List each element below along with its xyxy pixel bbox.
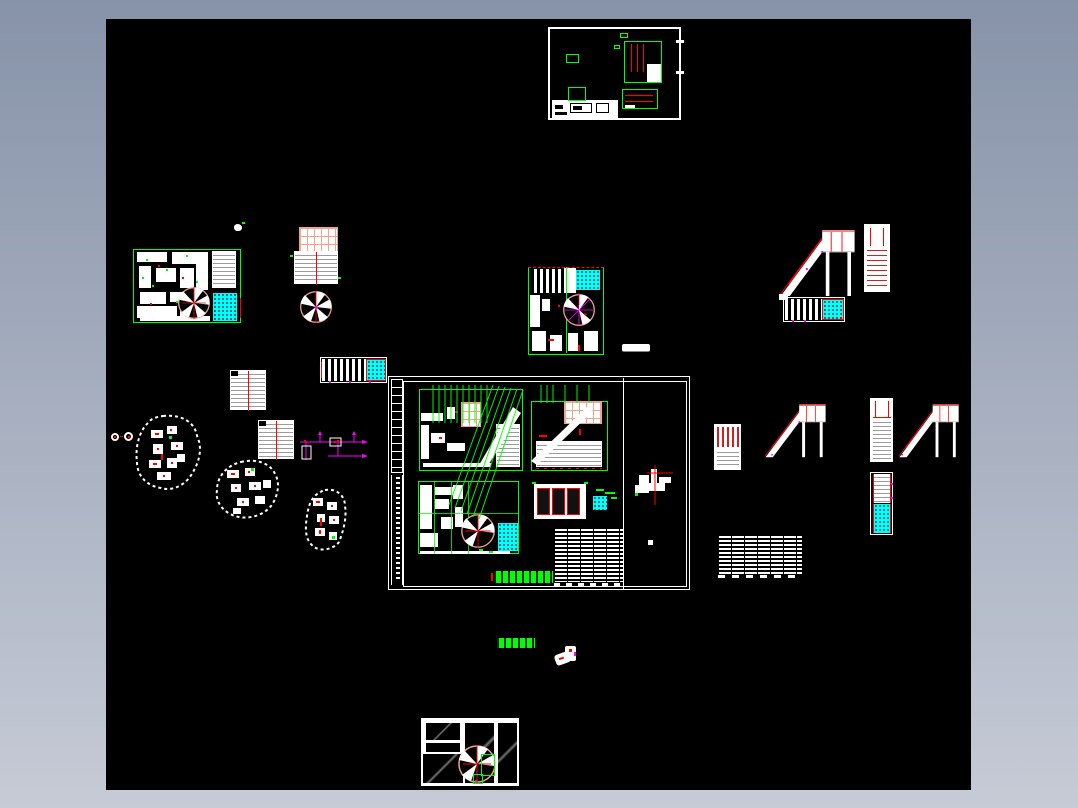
stair-run-plan bbox=[212, 251, 236, 288]
title-block-field bbox=[596, 103, 609, 113]
marker bbox=[840, 317, 842, 319]
hatched-shaft bbox=[576, 270, 600, 290]
revision-strip bbox=[391, 379, 403, 473]
panel bbox=[498, 723, 517, 783]
marker bbox=[584, 482, 588, 484]
marker bbox=[114, 436, 116, 438]
spiral-stair-plan bbox=[177, 286, 211, 320]
marker bbox=[891, 483, 893, 485]
marker bbox=[128, 436, 130, 438]
panel bbox=[426, 743, 460, 752]
tread-plan-hatched bbox=[320, 357, 387, 383]
wall-segment bbox=[532, 331, 546, 351]
hatched-shaft bbox=[213, 293, 237, 321]
marker bbox=[579, 429, 581, 435]
rungs bbox=[867, 246, 887, 289]
three-panel-elevation bbox=[534, 484, 586, 519]
highlighted-notes bbox=[494, 571, 553, 583]
notch bbox=[231, 371, 238, 376]
marker bbox=[146, 259, 148, 261]
title-block-mark bbox=[573, 106, 582, 110]
marker bbox=[605, 492, 615, 494]
marker bbox=[120, 436, 123, 437]
ladder-plan-hatched bbox=[870, 472, 893, 535]
wall-segment bbox=[584, 331, 598, 351]
site-blob-b bbox=[213, 458, 283, 520]
marker bbox=[539, 435, 547, 437]
marker bbox=[891, 497, 893, 499]
salmon-grid bbox=[564, 401, 602, 424]
tread-bars bbox=[785, 299, 822, 320]
table-footer-dashes bbox=[718, 575, 802, 578]
sheet-edge-tick bbox=[676, 40, 684, 43]
sheet-divider bbox=[623, 378, 624, 590]
tread-bars bbox=[322, 359, 366, 381]
detail-outline bbox=[566, 54, 579, 63]
wall-segment bbox=[196, 252, 208, 290]
marker bbox=[574, 652, 576, 656]
ladder-elevation bbox=[870, 398, 893, 462]
detail-outline bbox=[614, 45, 620, 49]
rail bbox=[870, 228, 871, 246]
top-detail-sheet bbox=[548, 27, 681, 120]
marker bbox=[479, 549, 483, 551]
marker bbox=[369, 381, 371, 383]
drawing-canvas[interactable] bbox=[106, 19, 971, 790]
node-marker bbox=[234, 224, 242, 231]
rail bbox=[875, 401, 876, 417]
marker bbox=[152, 285, 154, 287]
rail bbox=[888, 401, 889, 417]
wall-segment bbox=[431, 433, 445, 443]
marker bbox=[349, 381, 351, 383]
marker bbox=[196, 281, 198, 283]
panel bbox=[567, 488, 580, 515]
notch bbox=[259, 421, 266, 426]
ladder-section bbox=[230, 370, 266, 410]
detail-section bbox=[622, 89, 658, 109]
marker bbox=[578, 345, 580, 351]
title-block-mark bbox=[555, 105, 563, 109]
center-plan-cluster bbox=[528, 265, 606, 357]
wall-segment bbox=[423, 463, 491, 467]
wall-segment bbox=[140, 292, 166, 304]
parts-table bbox=[718, 536, 802, 574]
wall-segment bbox=[421, 425, 429, 459]
detail-structure bbox=[624, 41, 662, 83]
panel bbox=[537, 488, 550, 515]
schedule-table bbox=[554, 529, 623, 582]
sheet-edge-tick bbox=[676, 71, 684, 74]
marker bbox=[186, 255, 188, 257]
stair-run-plan bbox=[294, 251, 338, 284]
marker bbox=[569, 649, 572, 652]
vertical-text bbox=[396, 477, 400, 581]
red-centerline bbox=[248, 371, 249, 411]
detail-outline bbox=[568, 87, 586, 101]
wall-segment bbox=[420, 485, 432, 529]
stair-run bbox=[536, 441, 602, 467]
site-nodes bbox=[111, 431, 131, 445]
small-block bbox=[565, 646, 576, 661]
wall-segment bbox=[137, 252, 167, 262]
table-footer-dashes bbox=[554, 583, 623, 586]
wall-segment bbox=[550, 335, 562, 351]
rungs bbox=[873, 419, 891, 460]
wall-segment bbox=[453, 485, 463, 499]
tiny-label bbox=[622, 344, 650, 352]
tread-plan-hatched bbox=[783, 297, 845, 322]
green-axis bbox=[451, 481, 452, 554]
wall-segment bbox=[435, 499, 449, 509]
red-line bbox=[240, 298, 241, 318]
marker bbox=[596, 489, 604, 491]
ladder-section bbox=[258, 420, 294, 459]
red-line bbox=[625, 95, 653, 96]
vertical-text-strip bbox=[391, 475, 403, 585]
rungs bbox=[873, 474, 891, 503]
green-detail-box bbox=[481, 754, 495, 776]
wall-segment bbox=[447, 443, 465, 451]
hatched-shaft bbox=[498, 523, 518, 551]
marker bbox=[548, 339, 554, 341]
node-circle bbox=[111, 433, 119, 441]
panel bbox=[552, 488, 565, 515]
site-blob-a bbox=[133, 414, 203, 492]
roof-grid-plan bbox=[299, 227, 338, 252]
marker bbox=[182, 277, 184, 279]
wall-segment bbox=[530, 295, 540, 327]
stair-run bbox=[496, 424, 520, 467]
spiral-stair-plan bbox=[299, 290, 333, 324]
green-axis bbox=[434, 481, 435, 554]
red-line bbox=[625, 101, 653, 102]
white-fill bbox=[625, 105, 635, 108]
red-line bbox=[321, 362, 322, 378]
red-centerline bbox=[316, 252, 317, 285]
marker bbox=[150, 303, 152, 305]
title-block-mark bbox=[555, 112, 567, 115]
marker bbox=[158, 265, 160, 267]
wall-segment bbox=[542, 299, 550, 311]
red-line bbox=[643, 44, 644, 72]
hatched-detail bbox=[593, 496, 607, 510]
wall-segment bbox=[568, 333, 578, 351]
rail bbox=[873, 417, 891, 418]
highlighted-note bbox=[497, 638, 535, 648]
spiral-stair-plan bbox=[460, 513, 496, 549]
title-block bbox=[552, 100, 618, 118]
rail bbox=[883, 228, 884, 246]
wall-segment bbox=[420, 533, 438, 547]
white-fill bbox=[647, 64, 661, 82]
marker bbox=[558, 305, 560, 307]
red-centerline bbox=[276, 421, 277, 460]
marker bbox=[329, 381, 331, 383]
detail-outline bbox=[620, 33, 628, 38]
hatched-landing bbox=[366, 359, 386, 381]
hatched-landing bbox=[873, 504, 891, 533]
cad-preview-page: { "viewer": { "background_top": "#8793a9… bbox=[0, 0, 1078, 808]
marker bbox=[792, 320, 794, 322]
left-floorplan-cluster bbox=[133, 245, 245, 325]
bottom-panel-sheet bbox=[421, 718, 519, 786]
tread-bars bbox=[534, 269, 562, 293]
piping-schematic bbox=[298, 430, 368, 465]
marker bbox=[491, 573, 493, 581]
red-line bbox=[631, 44, 632, 72]
marker bbox=[338, 277, 341, 279]
node-circle bbox=[124, 432, 133, 441]
green-detail-box bbox=[473, 774, 483, 784]
main-assembly-sheet bbox=[388, 376, 690, 590]
title-block-field bbox=[570, 103, 592, 113]
panel bbox=[426, 723, 460, 740]
marker bbox=[489, 551, 493, 553]
marker bbox=[455, 411, 458, 413]
wall-segment bbox=[139, 266, 151, 288]
red-dash-row bbox=[536, 468, 602, 469]
marker bbox=[532, 482, 536, 484]
ladder-elevation bbox=[864, 224, 890, 292]
marker bbox=[611, 497, 617, 499]
wall-segment bbox=[447, 407, 455, 419]
marker bbox=[142, 277, 144, 279]
marker bbox=[166, 269, 168, 271]
spiral-stair-plan-magenta bbox=[562, 293, 596, 327]
marker bbox=[439, 437, 442, 439]
salmon-grid bbox=[461, 402, 481, 427]
site-blob-c bbox=[303, 488, 348, 552]
stair-elevation bbox=[779, 222, 860, 302]
marker bbox=[804, 320, 806, 322]
red-line bbox=[637, 44, 638, 72]
stair-elevation bbox=[764, 398, 830, 462]
marker bbox=[559, 657, 564, 661]
marker bbox=[290, 255, 293, 257]
rail-bars bbox=[717, 427, 739, 447]
marker bbox=[242, 222, 245, 224]
rail-panel bbox=[714, 424, 741, 470]
rungs bbox=[717, 449, 739, 468]
wall-segment bbox=[421, 413, 443, 421]
stair-elevation bbox=[898, 398, 963, 462]
